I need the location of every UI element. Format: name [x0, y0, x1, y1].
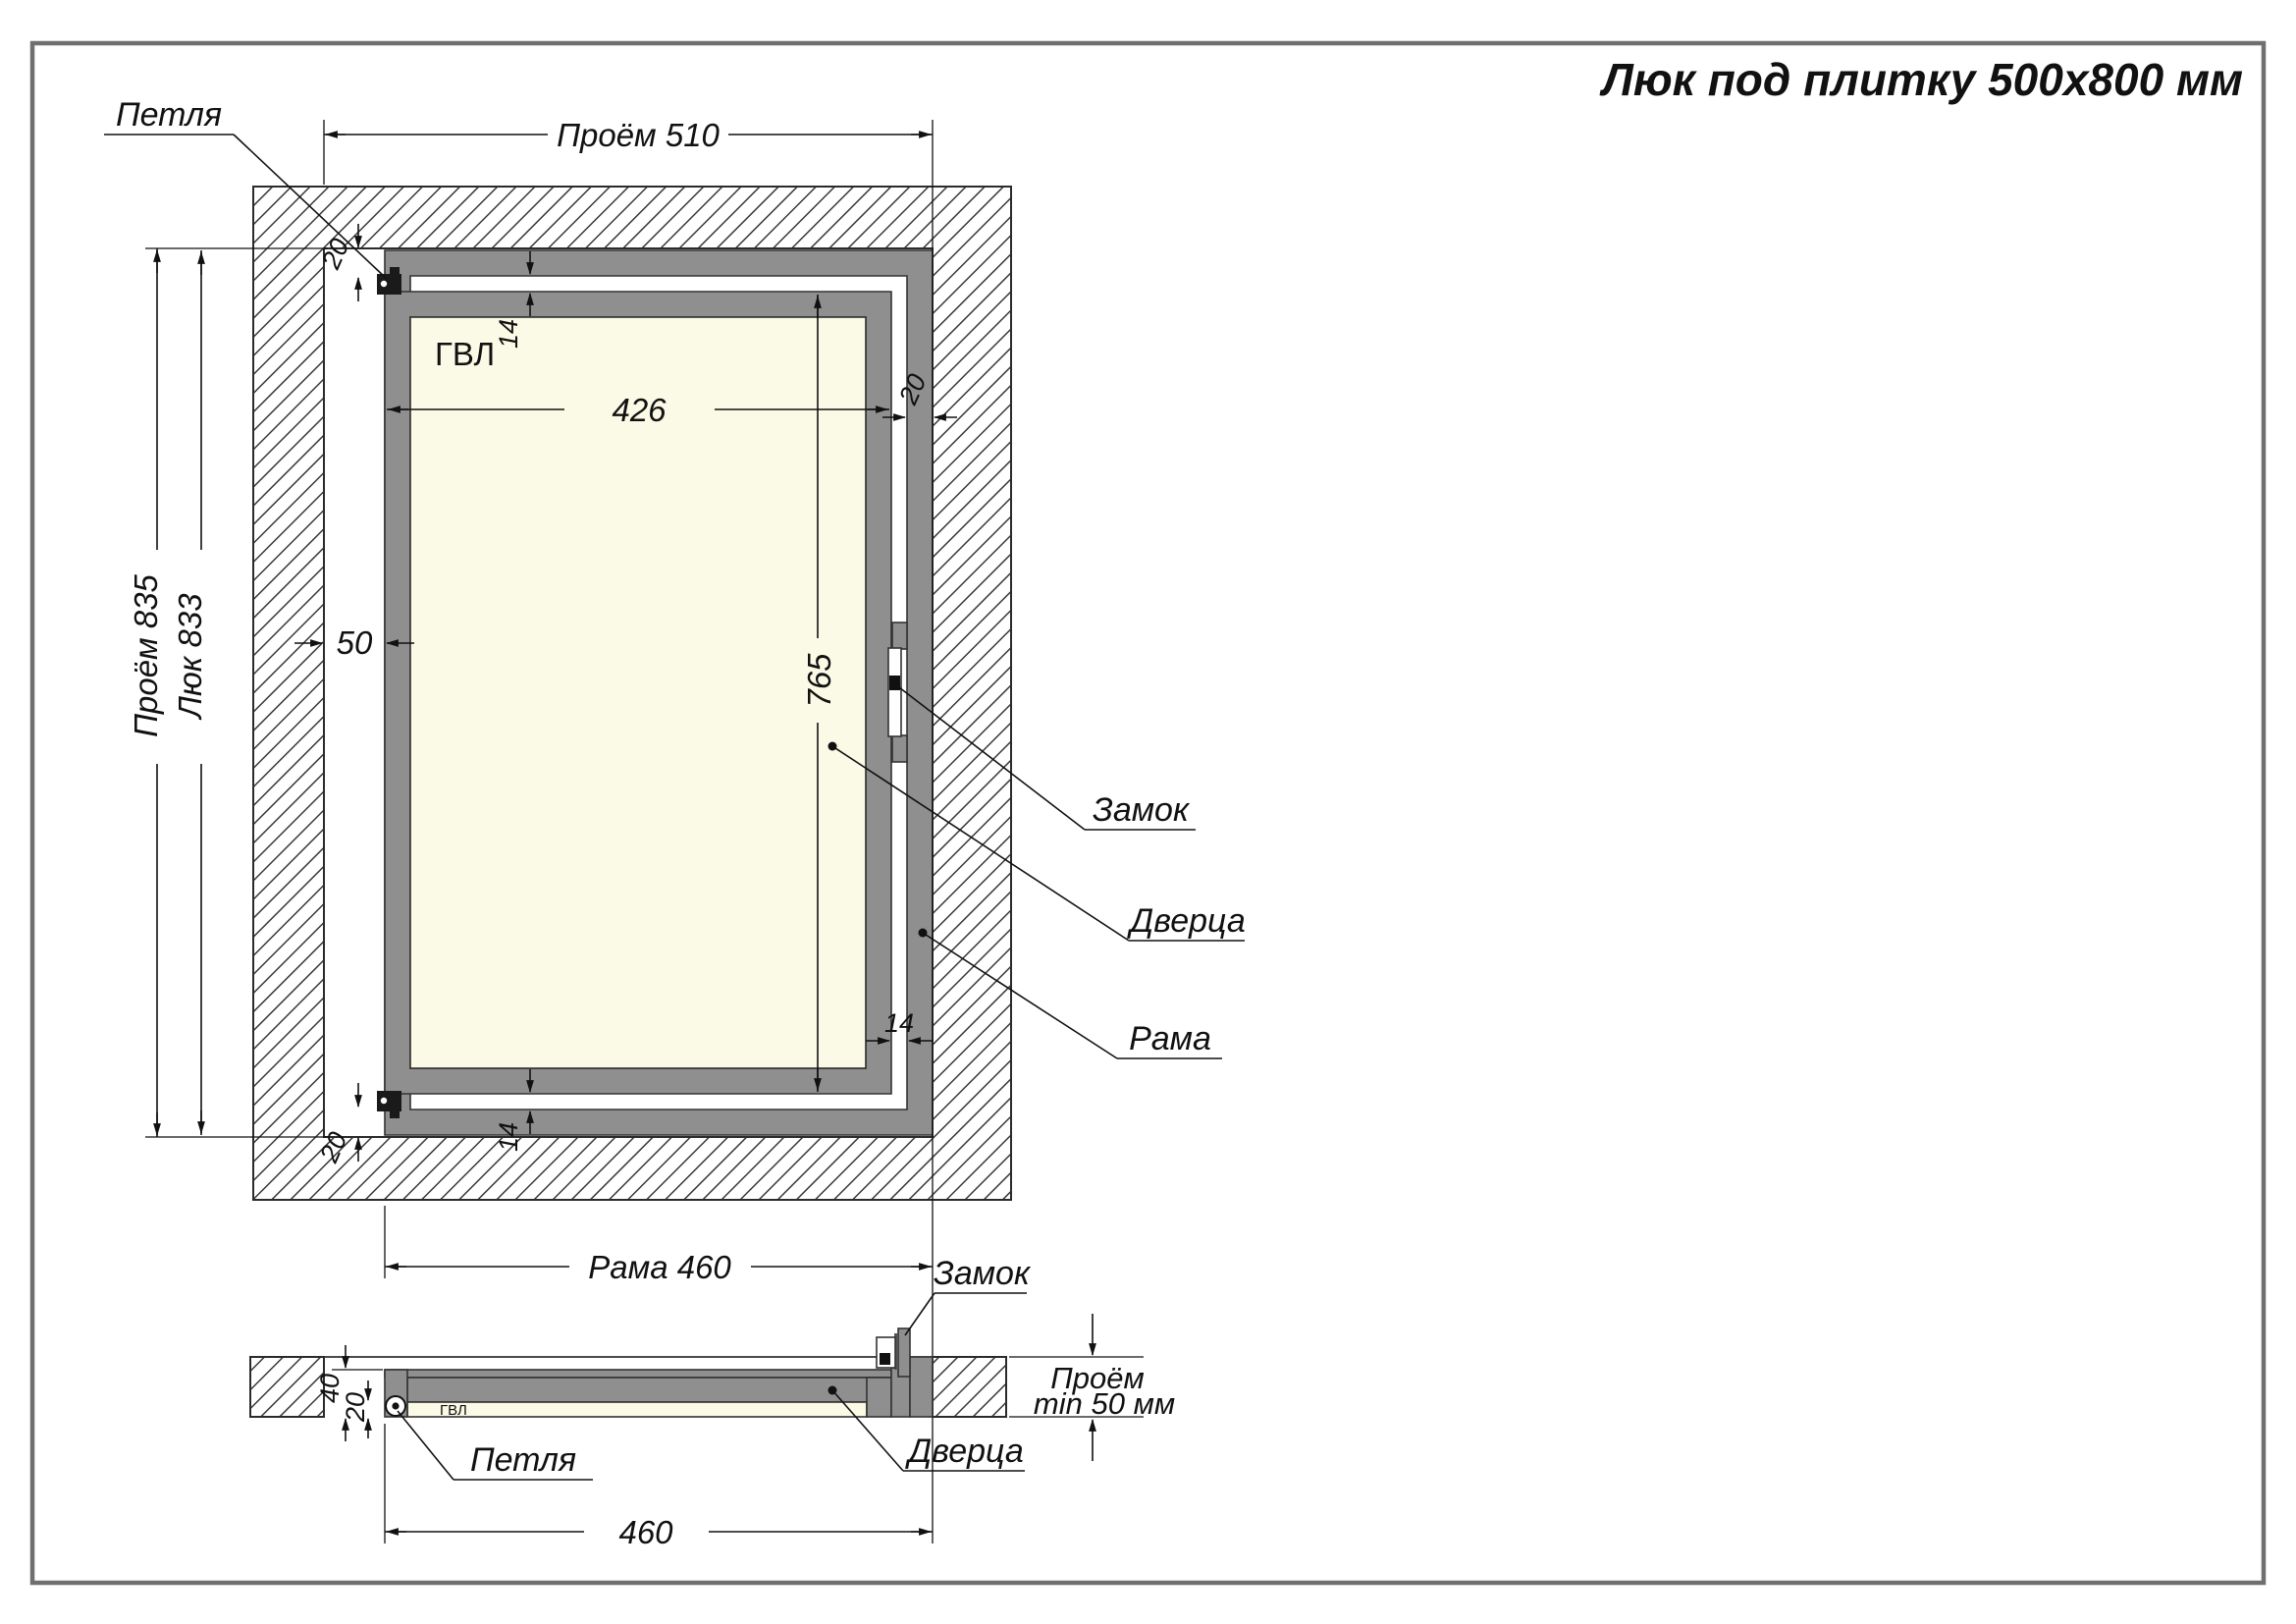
wall-hatch-section-right: [933, 1357, 1006, 1417]
door-body-section: [407, 1378, 891, 1402]
dim-panel-width: 426: [612, 392, 667, 428]
callout-lock-section: Замок: [934, 1255, 1032, 1292]
callout-door-front: Дверца: [1126, 902, 1246, 940]
gvl-label-section: ГВЛ: [440, 1402, 467, 1419]
door-end-post-section: [867, 1378, 891, 1417]
dim-panel-height: 765: [801, 653, 837, 708]
front-view: ГВЛ: [253, 187, 1011, 1200]
dim-opening-width: Проём 510: [557, 117, 720, 153]
dim-left-gap: 50: [337, 624, 373, 661]
dim-slot-top: 14: [494, 319, 523, 349]
gvl-label-front: ГВЛ: [435, 336, 495, 372]
drawing-page: Люк под плитку 500х800 мм ГВЛ: [0, 0, 2296, 1624]
gvl-panel: [410, 317, 866, 1068]
dim-frame-width-section: 460: [618, 1514, 673, 1550]
callout-door-section: Дверца: [904, 1433, 1024, 1470]
gvl-strip-section: [407, 1402, 867, 1417]
callout-hinge-section: Петля: [470, 1441, 576, 1479]
wall-hatch-section-left: [250, 1357, 324, 1417]
hatch-unit-section: ГВЛ: [385, 1328, 933, 1419]
door-flange-section: [385, 1370, 891, 1378]
callout-hinge-front: Петля: [116, 96, 222, 134]
dim-opening-note-line2: min 50 мм: [1034, 1386, 1175, 1421]
section-dimensions: 460 40 20 Проём min 50 мм: [315, 1314, 1175, 1550]
callout-frame-front: Рама: [1129, 1020, 1211, 1057]
dim-panel-thickness-section: 20: [341, 1392, 370, 1423]
frame-post-section: [910, 1357, 933, 1417]
hinge-pivot-section: [386, 1396, 405, 1416]
dim-slot-bottom: 14: [494, 1122, 523, 1152]
callout-lock-front: Замок: [1093, 791, 1191, 829]
page-title: Люк под плитку 500х800 мм: [1599, 54, 2243, 105]
dim-opening-height: Проём 835: [128, 573, 164, 736]
dim-hatch-height: Люк 833: [172, 593, 208, 721]
dim-slot-right: 14: [884, 1008, 914, 1038]
dim-frame-width: Рама 460: [588, 1249, 731, 1285]
